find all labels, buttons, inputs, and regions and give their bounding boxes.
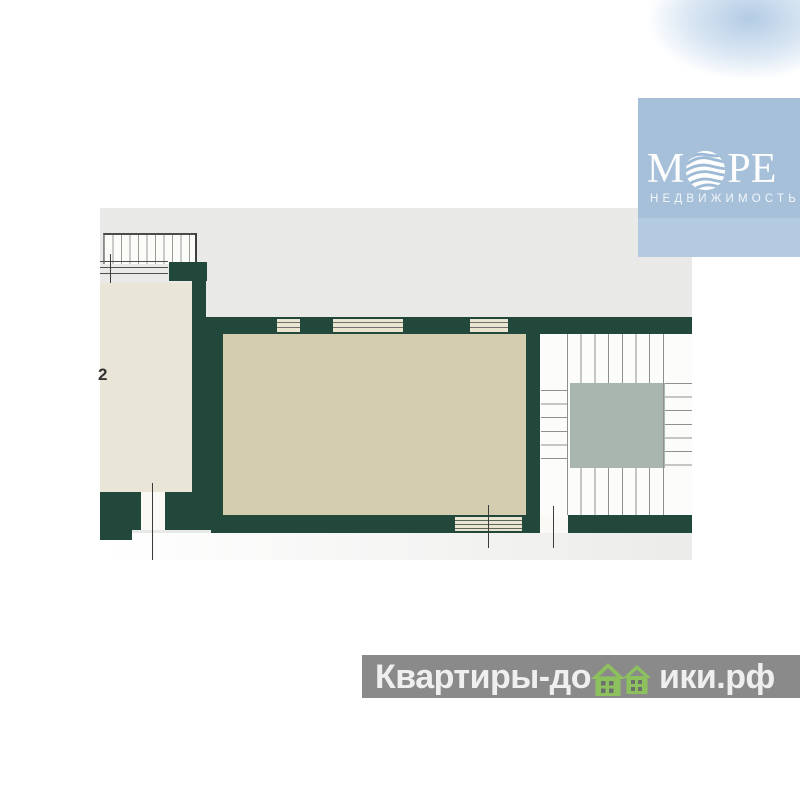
stair-edge-line-right <box>663 334 664 515</box>
wall-vertical-upper <box>192 262 206 318</box>
stair-treads-bottom <box>567 468 664 515</box>
house-back <box>623 665 651 694</box>
twin-house-icon <box>590 658 660 698</box>
window-opening-1 <box>277 319 300 332</box>
stair-edge-line-left <box>567 334 568 515</box>
watermark-text-left: Квартиры-до <box>375 660 591 694</box>
left-room <box>100 283 192 492</box>
wall-bottom-left-foot <box>100 530 132 540</box>
wall-room-right <box>526 334 540 531</box>
floorplan-background-lower-strip <box>100 533 692 560</box>
brand-subtitle: НЕДВИЖИМОСТЬ <box>650 193 800 205</box>
door-opening-left <box>141 492 165 530</box>
watermark-bar: Квартиры-до ики.рф <box>362 655 800 698</box>
window-opening-3 <box>470 319 508 332</box>
logo-background-strip <box>638 218 800 257</box>
stair-treads-left <box>541 390 567 468</box>
elevator-shaft <box>570 383 665 468</box>
brand-logo: М РЕ <box>647 146 800 192</box>
wall-top-horizontal <box>192 317 692 334</box>
house-front <box>591 663 625 696</box>
center-room <box>223 334 526 515</box>
dimension-tick-bottom-1 <box>488 505 489 548</box>
window-opening-2 <box>333 319 403 332</box>
brand-text-right: РЕ <box>727 148 776 190</box>
stair-treads-right <box>665 383 692 471</box>
dimension-tick-bottom-2 <box>553 506 554 548</box>
globe-wave-sphere-icon <box>685 150 726 191</box>
watermark-text-right: ики.рф <box>659 660 775 694</box>
stair-treads-top <box>567 334 664 383</box>
door-opening-stairwell <box>540 515 568 533</box>
screenshot-page: 2 М <box>0 0 800 800</box>
brand-text-left: М <box>647 148 684 190</box>
balcony-hatched-area <box>103 233 197 264</box>
room-area-label: 2 <box>98 366 107 383</box>
door-axis-line-left <box>152 483 153 560</box>
wall-vertical-thick <box>192 334 223 530</box>
wall-bottom-horizontal <box>211 515 692 533</box>
